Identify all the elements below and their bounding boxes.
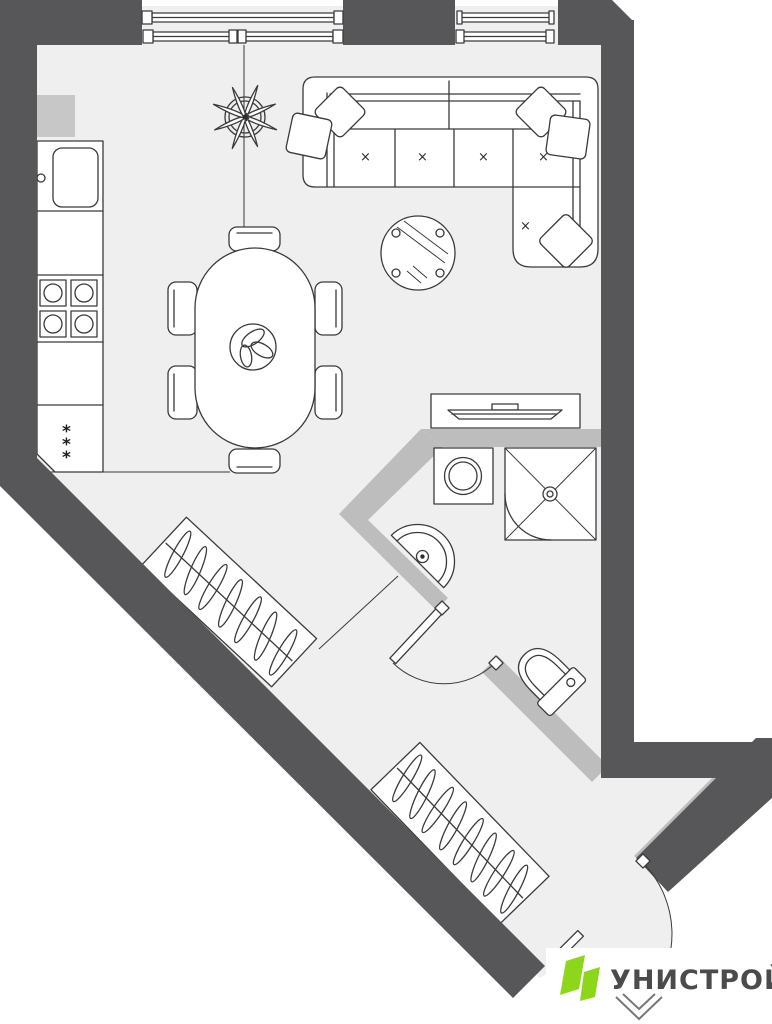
floor-plan-drawing: * * * <box>0 0 772 1024</box>
svg-text:×: × <box>478 150 489 165</box>
coffee-table-icon <box>381 216 455 290</box>
chair-icon <box>315 282 342 335</box>
svg-text:*: * <box>62 448 71 468</box>
washing-machine-icon <box>434 448 493 504</box>
pillow-icon <box>545 114 590 159</box>
partition-bathroom-top <box>421 429 601 447</box>
shower-icon <box>505 448 596 540</box>
chair-icon <box>315 366 342 419</box>
floor-plan-page: * * * <box>0 0 772 1024</box>
svg-text:×: × <box>360 150 371 165</box>
svg-text:×: × <box>417 150 428 165</box>
table-plant-icon <box>230 324 276 370</box>
unistroy-logo[interactable]: УНИСТРОЙ <box>546 948 772 1002</box>
svg-text:×: × <box>520 219 531 234</box>
logo-text: УНИСТРОЙ <box>610 964 772 996</box>
pillow-icon <box>285 112 332 159</box>
chair-icon <box>229 449 280 473</box>
chair-icon <box>168 282 197 335</box>
chair-icon <box>168 366 197 419</box>
tv-stand-icon <box>431 394 580 428</box>
freezer-icon: * * * <box>62 422 71 468</box>
vent-shaft <box>37 95 75 137</box>
